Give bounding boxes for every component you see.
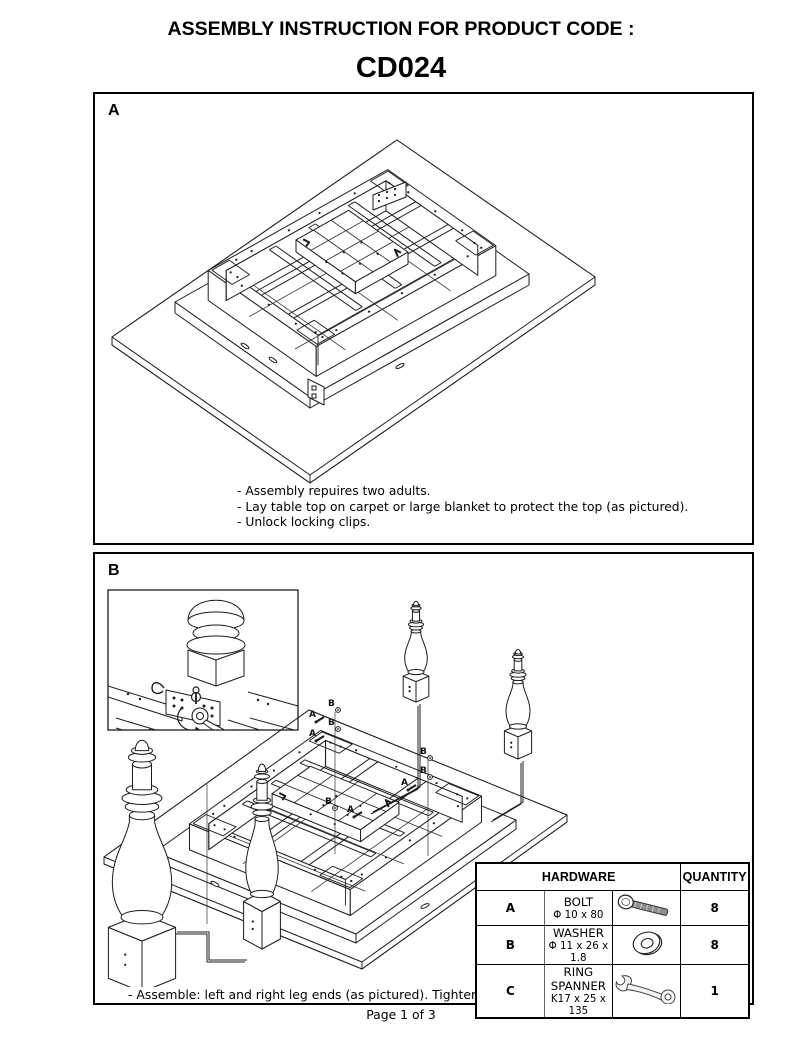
svg-text:A: A — [401, 778, 408, 788]
hardware-quantity: 8 — [681, 891, 749, 926]
ring-spanner-icon — [615, 974, 679, 1004]
hardware-row-spanner: C RING SPANNER K17 x 25 x 135 — [476, 965, 749, 1019]
hardware-quantity: 8 — [681, 926, 749, 965]
note-line: - Assembly repuires two adults. — [237, 484, 688, 500]
svg-text:B: B — [325, 797, 332, 807]
table-top-diagram — [95, 94, 752, 543]
hardware-spec: Φ 10 x 80 — [545, 909, 612, 921]
page-title: ASSEMBLY INSTRUCTION FOR PRODUCT CODE : — [0, 18, 802, 41]
washer-icon — [624, 927, 670, 959]
note-line: - Lay table top on carpet or large blank… — [237, 500, 688, 516]
svg-text:A: A — [309, 729, 316, 739]
svg-text:A: A — [347, 805, 354, 815]
hardware-quantity: 1 — [681, 965, 749, 1019]
hardware-table: HARDWARE QUANTITY A BOLT Φ 10 x 80 — [475, 862, 750, 1019]
bolt-icon — [616, 892, 678, 920]
assembly-notes: - Assembly repuires two adults. - Lay ta… — [237, 484, 688, 531]
hardware-header: HARDWARE — [476, 863, 681, 891]
hardware-spec: Φ 11 x 26 x 1.8 — [545, 940, 612, 964]
svg-text:B: B — [420, 766, 427, 776]
svg-text:A: A — [309, 710, 316, 720]
product-code: CD024 — [0, 52, 802, 85]
panel-a: A - Assembly repuires two adults. - Lay … — [93, 92, 754, 545]
note-line: - Unlock locking clips. — [237, 515, 688, 531]
svg-text:B: B — [328, 699, 335, 709]
quantity-header: QUANTITY — [681, 863, 749, 891]
hardware-name: RING SPANNER — [545, 965, 612, 993]
hardware-header-row: HARDWARE QUANTITY — [476, 863, 749, 891]
panel-a-label: A — [108, 102, 120, 120]
svg-text:B: B — [420, 747, 427, 757]
hardware-name: WASHER — [545, 926, 612, 940]
panel-b: B ABABABBAB HARDWARE QUANTITY A BOLT Φ 1… — [93, 552, 754, 1005]
hardware-name: BOLT — [545, 895, 612, 909]
hardware-spec: K17 x 25 x 135 — [545, 993, 612, 1017]
hardware-key: A — [476, 891, 544, 926]
hardware-key: C — [476, 965, 544, 1019]
hardware-key: B — [476, 926, 544, 965]
hardware-row-washer: B WASHER Φ 11 x 26 x 1.8 8 — [476, 926, 749, 965]
panel-b-label: B — [108, 562, 120, 580]
hardware-row-bolt: A BOLT Φ 10 x 80 — [476, 891, 749, 926]
svg-text:B: B — [328, 718, 335, 728]
assembly-instruction-page: ASSEMBLY INSTRUCTION FOR PRODUCT CODE : … — [0, 0, 802, 1037]
